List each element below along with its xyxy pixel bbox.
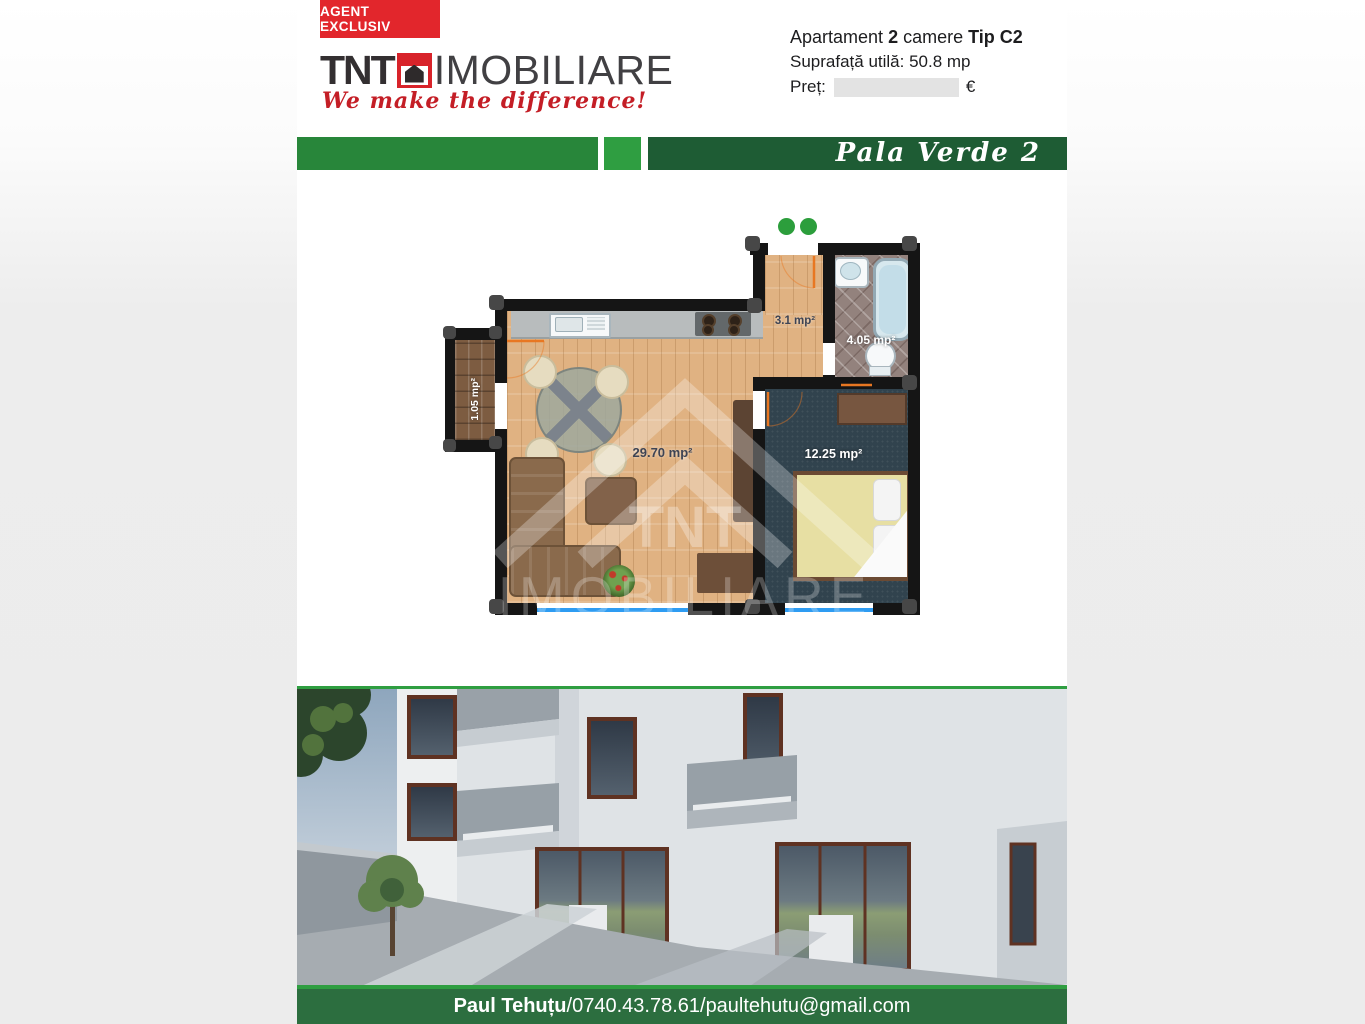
balcony-wall bbox=[445, 328, 455, 452]
building-render bbox=[297, 689, 1067, 988]
corner-post bbox=[902, 236, 917, 251]
logo-tagline: We make the difference! bbox=[322, 88, 647, 114]
corner-post bbox=[443, 439, 456, 452]
corner-post bbox=[443, 326, 456, 339]
green-dot-icon bbox=[778, 218, 795, 235]
window-glass bbox=[537, 608, 688, 612]
logo-imobiliare-text: IMOBILIARE bbox=[434, 50, 674, 91]
bathroom-sink bbox=[834, 257, 869, 288]
bedroom-door-opening bbox=[753, 391, 765, 429]
price-blank-box bbox=[834, 78, 959, 97]
currency-symbol: € bbox=[966, 77, 975, 97]
bathroom-door-opening bbox=[823, 343, 835, 375]
bedroom-area-label: 12.25 mp² bbox=[771, 448, 896, 461]
stove bbox=[695, 312, 751, 336]
corner-post bbox=[489, 326, 502, 339]
agent-phone: 0740.43.78.61 bbox=[572, 995, 700, 1018]
toilet-tank bbox=[869, 366, 891, 376]
agent-name: Paul Tehuțu bbox=[454, 995, 567, 1018]
living-window bbox=[537, 603, 688, 615]
hall-floor bbox=[765, 255, 823, 315]
hallway-area-label: 3.1 mp² bbox=[763, 316, 827, 328]
bed bbox=[793, 471, 911, 581]
sideboard bbox=[697, 553, 759, 593]
banner-segment-right: Pala Verde 2 bbox=[648, 137, 1067, 170]
kitchen-sink bbox=[549, 313, 611, 338]
chair bbox=[595, 365, 629, 399]
entrance-opening bbox=[768, 243, 818, 255]
armchair bbox=[585, 477, 637, 525]
pillow bbox=[873, 479, 901, 521]
usable-area-line: Suprafață utilă: 50.8 mp bbox=[790, 52, 1060, 72]
exclusive-agent-badge: AGENT EXCLUSIV bbox=[320, 0, 440, 38]
price-label: Preț: bbox=[790, 77, 826, 97]
balcony-door-opening bbox=[495, 383, 507, 429]
logo-tnt-text: TNT bbox=[320, 50, 394, 91]
banner-segment-mid bbox=[604, 137, 641, 170]
corner-post bbox=[489, 295, 504, 310]
corner-post bbox=[902, 375, 917, 390]
corner-post bbox=[745, 236, 760, 251]
corner-post bbox=[489, 436, 502, 449]
wall bbox=[753, 377, 920, 389]
apartment-info: Apartament 2 camere Tip C2 Suprafață uti… bbox=[790, 27, 1060, 97]
window-glass bbox=[785, 608, 873, 612]
house-icon bbox=[397, 53, 432, 88]
chair bbox=[523, 355, 557, 389]
green-dot-icon bbox=[800, 218, 817, 235]
wall bbox=[495, 299, 765, 311]
bathtub bbox=[873, 258, 912, 341]
sofa bbox=[509, 545, 621, 597]
agent-email: paultehutu@gmail.com bbox=[706, 995, 911, 1018]
corner-post bbox=[745, 599, 760, 614]
bathroom-area-label: 4.05 mp² bbox=[833, 334, 909, 346]
bedroom-window bbox=[785, 603, 873, 615]
corner-post bbox=[747, 298, 762, 313]
contact-footer: Paul Tehuțu / 0740.43.78.61 / paultehutu… bbox=[297, 985, 1067, 1024]
balcony-area-label: 1.05 mp² bbox=[470, 369, 481, 429]
plant bbox=[603, 565, 635, 597]
banner-segment-left bbox=[297, 137, 598, 170]
corner-post bbox=[489, 599, 504, 614]
floor-plan: TNT IMOBILIARE 3.1 mp² 4.05 mp² 29.70 mp… bbox=[445, 215, 921, 621]
wall bbox=[908, 243, 920, 615]
flyer-page: AGENT EXCLUSIV TNT IMOBILIARE We make th… bbox=[297, 0, 1067, 1024]
company-logo: TNT IMOBILIARE bbox=[320, 48, 673, 92]
apartment-title: Apartament 2 camere Tip C2 bbox=[790, 27, 1060, 48]
corner-post bbox=[902, 599, 917, 614]
price-line: Preț: € bbox=[790, 77, 1060, 97]
building-photo bbox=[297, 686, 1067, 988]
wardrobe bbox=[837, 393, 907, 425]
project-name: Pala Verde 2 bbox=[836, 137, 1041, 170]
wall bbox=[495, 299, 507, 615]
living-area-label: 29.70 mp² bbox=[600, 446, 725, 459]
